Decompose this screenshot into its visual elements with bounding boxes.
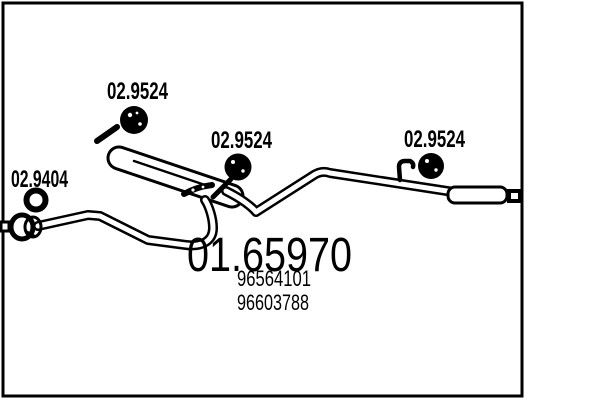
front-pipe-end-nub bbox=[1, 222, 9, 231]
hanger-hook-rear bbox=[399, 161, 413, 180]
rubber-mount-hole bbox=[231, 160, 235, 164]
rubber-mount-hole bbox=[241, 169, 244, 172]
rubber-mount-front bbox=[120, 106, 148, 134]
rubber-mount-hole bbox=[425, 159, 429, 163]
rubber-mount-hole bbox=[136, 112, 139, 115]
rubber-mount-body bbox=[225, 154, 252, 181]
rubber-mount-rear bbox=[418, 153, 444, 179]
muffler-silencer bbox=[119, 158, 232, 196]
label-hanger-middle-part: 02.9524 bbox=[211, 127, 272, 154]
tail-pipe-sleeve bbox=[448, 187, 507, 203]
oe-number-1: 96564101 bbox=[237, 266, 311, 291]
label-hanger-rear-part: 02.9524 bbox=[404, 126, 465, 153]
rear-pipe bbox=[226, 172, 460, 212]
rubber-mount-hole bbox=[434, 168, 437, 171]
rubber-mount-body bbox=[418, 153, 444, 179]
muffler-fill bbox=[119, 158, 232, 196]
frame-border bbox=[3, 3, 522, 396]
hanger-rod-front bbox=[97, 127, 117, 141]
exhaust-diagram-canvas: 02.9404 02.9524 02.9524 02.9524 01.65970… bbox=[0, 0, 600, 400]
rubber-mount-hole bbox=[128, 113, 132, 117]
tail-pipe-end-nub bbox=[509, 191, 520, 201]
rubber-mount-body bbox=[120, 106, 148, 134]
label-gasket-part: 02.9404 bbox=[11, 166, 68, 193]
tail-pipe bbox=[448, 187, 520, 203]
gasket-ring-icon bbox=[27, 191, 46, 210]
exhaust-diagram: 02.9404 02.9524 02.9524 02.9524 01.65970… bbox=[0, 0, 600, 400]
clamp-detail bbox=[202, 186, 205, 189]
oe-number-2: 96603788 bbox=[237, 290, 309, 315]
clamp-detail bbox=[191, 188, 194, 191]
rubber-mount-middle bbox=[225, 154, 252, 181]
label-hanger-front-part: 02.9524 bbox=[107, 78, 168, 105]
rubber-mount-hole bbox=[138, 122, 142, 126]
